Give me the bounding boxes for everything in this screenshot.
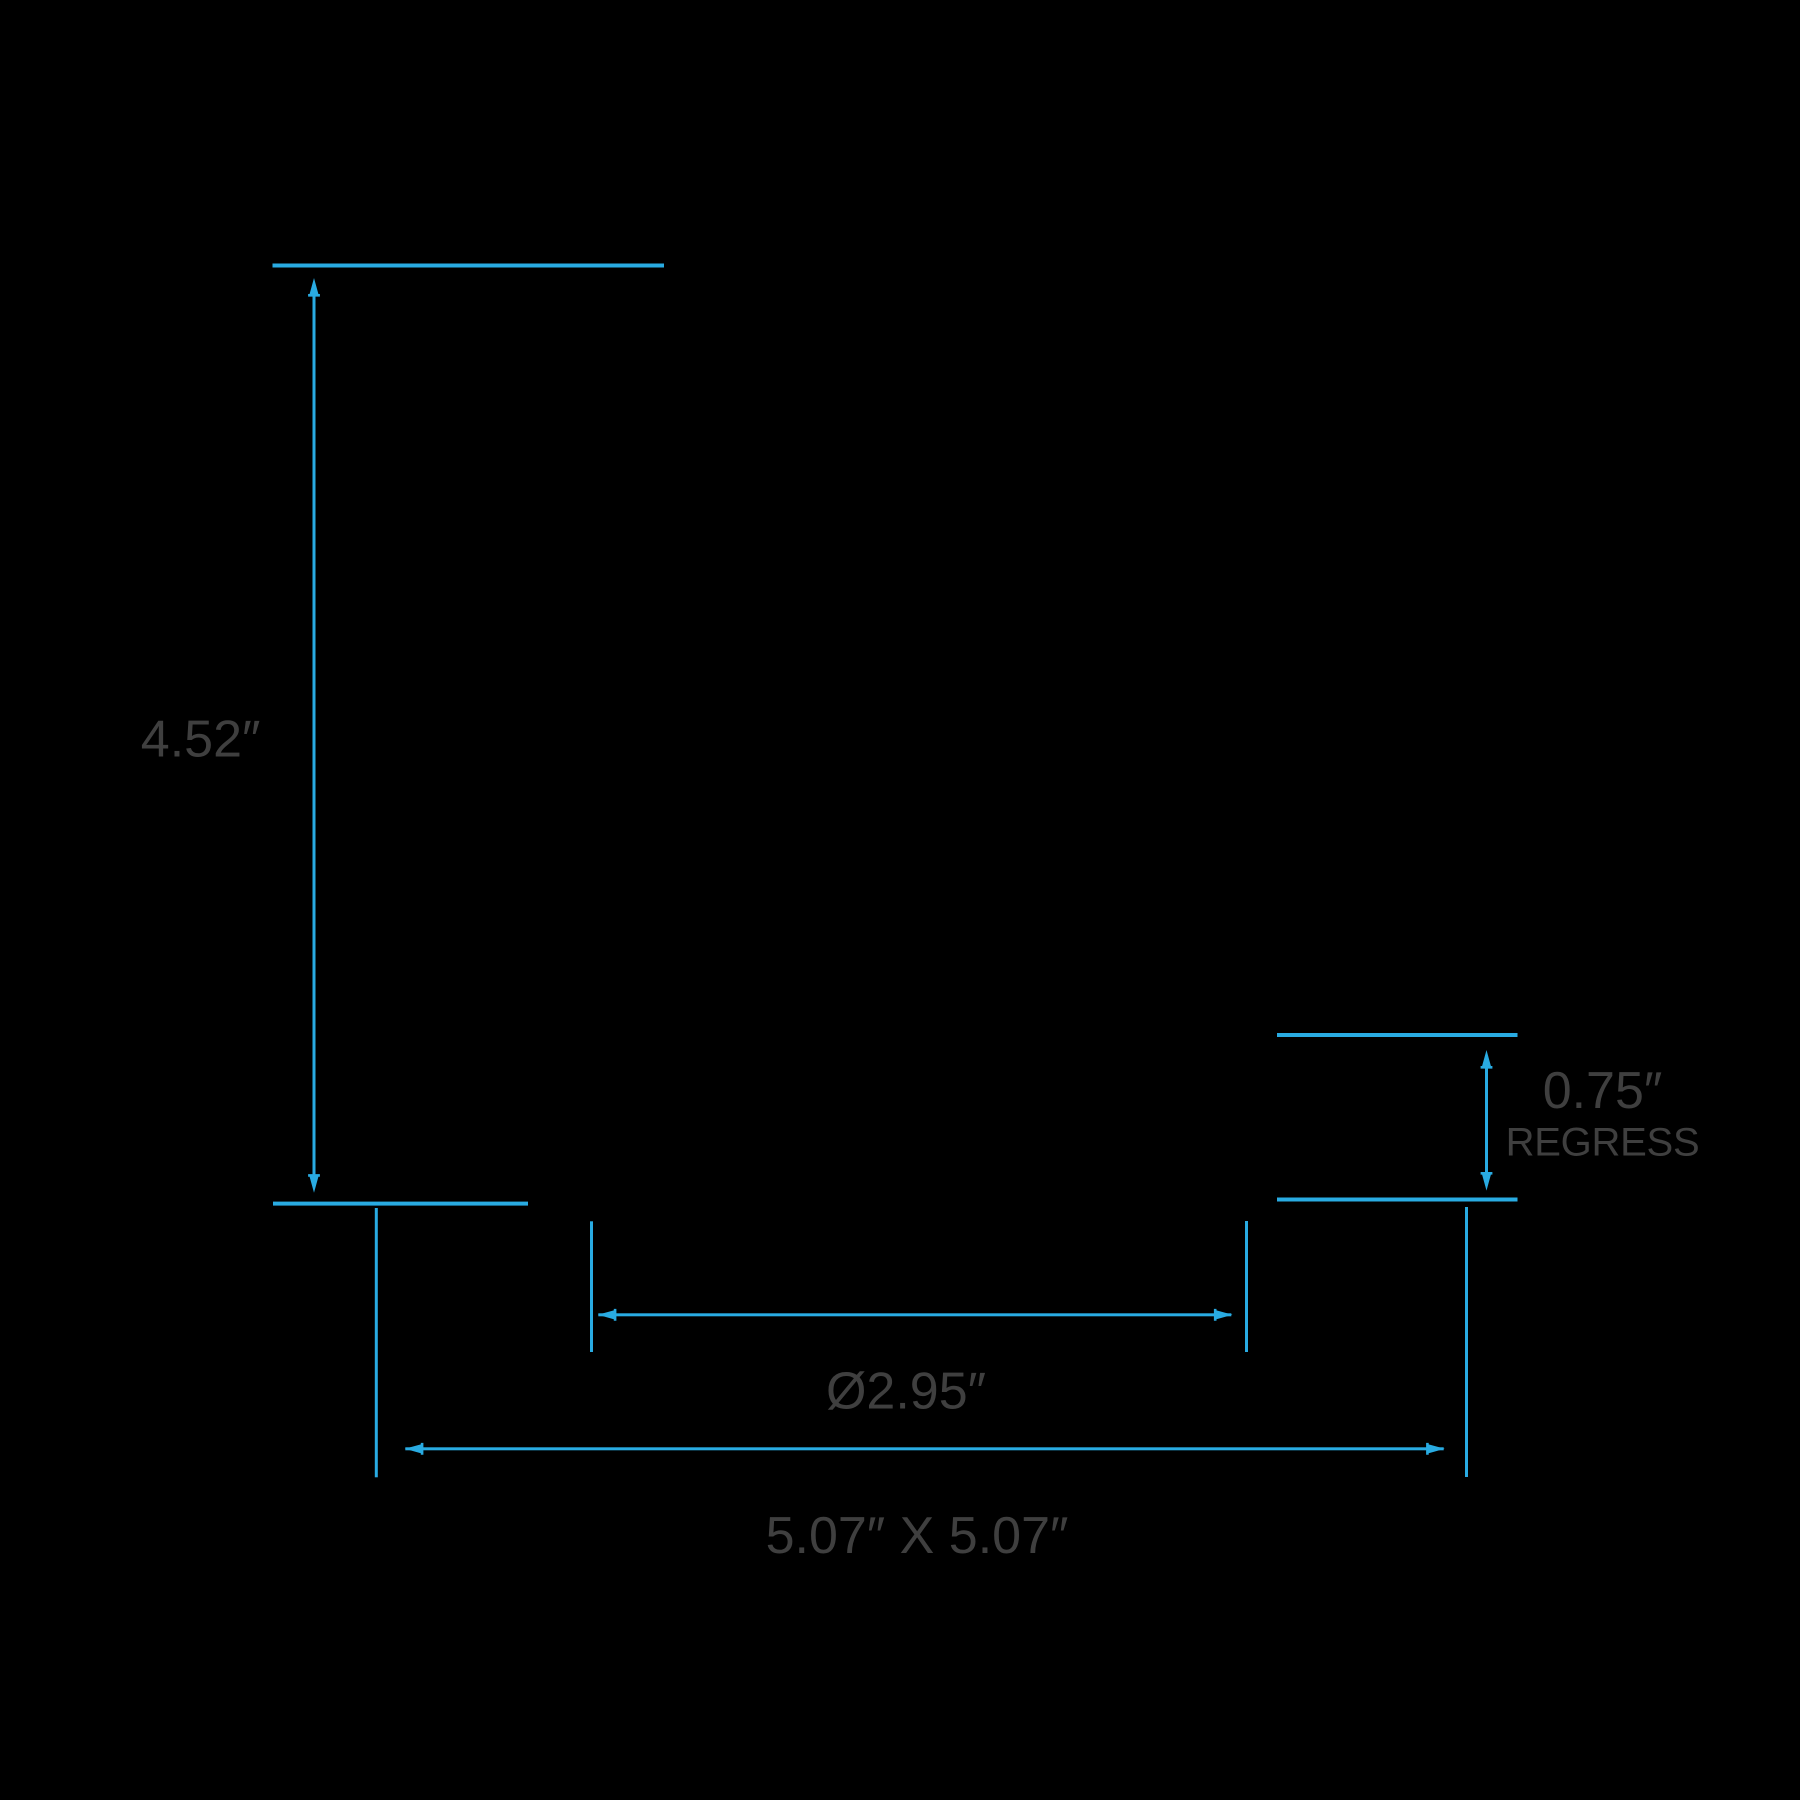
svg-text:0.75″: 0.75″: [1543, 1062, 1663, 1120]
svg-text:REGRESS: REGRESS: [1506, 1121, 1700, 1165]
svg-text:5.07″ X 5.07″: 5.07″ X 5.07″: [766, 1507, 1069, 1565]
svg-text:Ø2.95″: Ø2.95″: [826, 1362, 986, 1420]
svg-text:4.52″: 4.52″: [141, 711, 261, 769]
